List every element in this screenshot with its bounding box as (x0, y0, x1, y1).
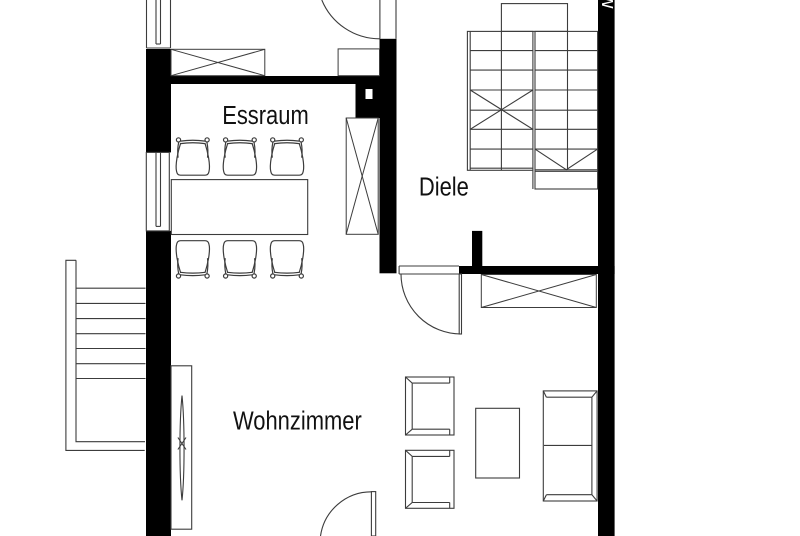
svg-text:Wohnzimmer: Wohnzimmer (233, 407, 362, 436)
svg-text:w: w (597, 0, 619, 9)
svg-text:Diele: Diele (419, 173, 469, 202)
svg-text:Essraum: Essraum (222, 101, 309, 130)
